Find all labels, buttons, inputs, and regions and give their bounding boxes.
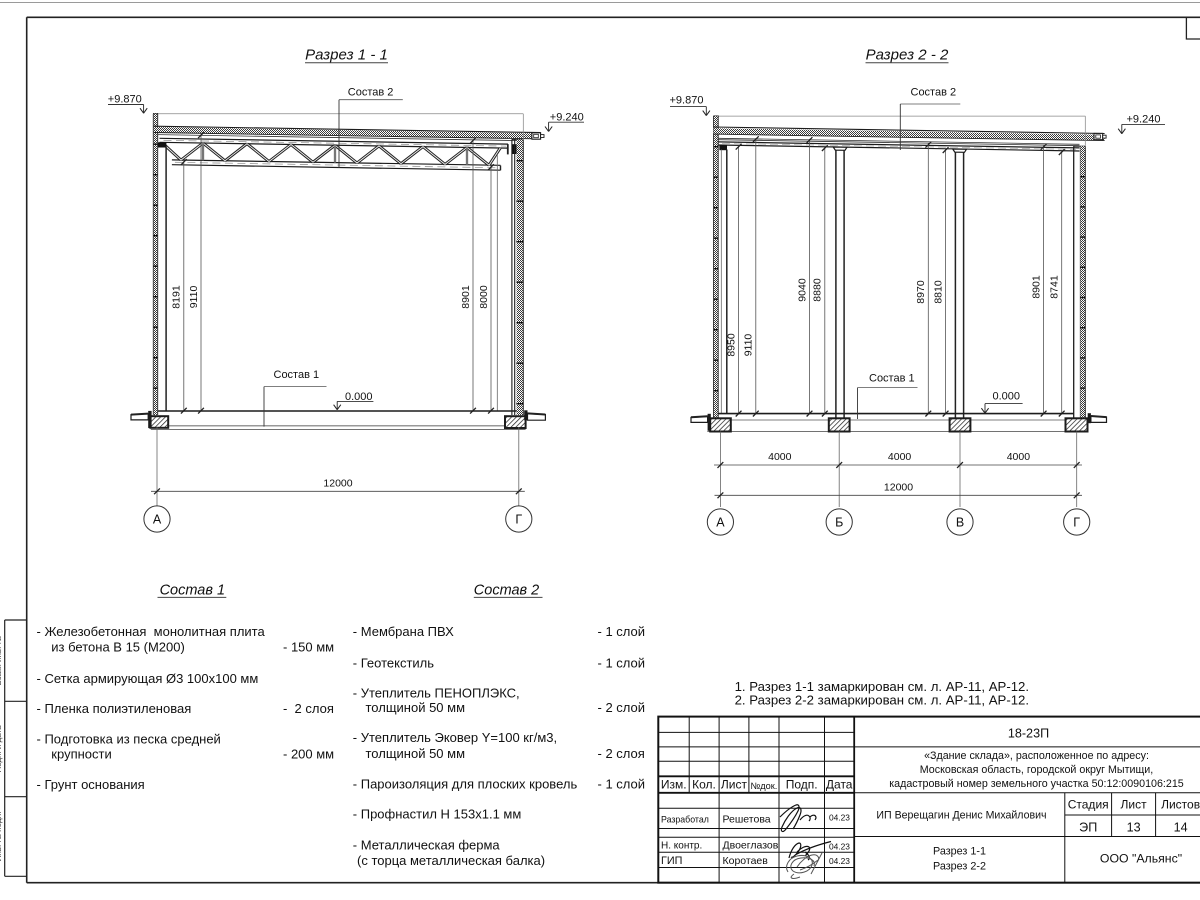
svg-text:14: 14 bbox=[1174, 820, 1188, 834]
svg-text:Изм.: Изм. bbox=[661, 778, 687, 792]
svg-text:- 200 мм: - 200 мм bbox=[283, 747, 334, 762]
svg-text:- Утеплитель ПЕНОПЛЭКС,: - Утеплитель ПЕНОПЛЭКС, bbox=[353, 686, 520, 701]
svg-text:Состав 1: Состав 1 bbox=[869, 373, 915, 385]
svg-text:04.23: 04.23 bbox=[829, 841, 850, 851]
svg-text:Разрез 2-2: Разрез 2-2 bbox=[933, 861, 986, 873]
svg-text:ООО "Альянс": ООО "Альянс" bbox=[1100, 852, 1182, 866]
svg-text:Подп.: Подп. bbox=[786, 778, 818, 792]
svg-text:8000: 8000 bbox=[478, 285, 490, 309]
svg-text:- Геотекстиль: - Геотекстиль bbox=[353, 655, 434, 670]
svg-text:кадастровый номер земельного у: кадастровый номер земельного участка 50:… bbox=[889, 778, 1183, 790]
svg-text:13: 13 bbox=[1127, 820, 1141, 834]
svg-text:04.23: 04.23 bbox=[829, 813, 850, 823]
svg-text:8901: 8901 bbox=[1030, 275, 1042, 299]
svg-text:Состав 2: Состав 2 bbox=[348, 86, 394, 98]
svg-text:Кол.: Кол. bbox=[692, 778, 716, 792]
svg-text:+9.870: +9.870 bbox=[108, 94, 142, 106]
svg-text:крупности: крупности bbox=[51, 747, 111, 762]
svg-text:8950: 8950 bbox=[725, 333, 737, 357]
svg-text:4000: 4000 bbox=[1007, 451, 1031, 463]
svg-text:18-23П: 18-23П bbox=[1008, 727, 1049, 741]
svg-text:Состав 1: Состав 1 bbox=[274, 369, 320, 381]
svg-text:Московская область, городской: Московская область, городской округ Мыти… bbox=[920, 764, 1153, 776]
svg-text:- 1 слой: - 1 слой bbox=[598, 655, 646, 670]
svg-text:04.23: 04.23 bbox=[829, 856, 850, 866]
svg-text:Решетова: Решетова bbox=[723, 814, 771, 826]
svg-text:Состав 2: Состав 2 bbox=[474, 582, 539, 598]
svg-text:ИП Верещагин Денис Михайлович: ИП Верещагин Денис Михайлович bbox=[876, 810, 1046, 822]
svg-text:Г: Г bbox=[1073, 515, 1080, 529]
svg-text:ЭП: ЭП bbox=[1079, 820, 1097, 834]
svg-text:+9.240: +9.240 bbox=[1127, 113, 1161, 125]
svg-text:- Подготовка из песка средней: - Подготовка из песка средней bbox=[37, 731, 221, 746]
svg-text:- 1 слой: - 1 слой bbox=[598, 776, 646, 791]
svg-text:- Металлическая ферма: - Металлическая ферма bbox=[353, 837, 501, 852]
svg-text:А: А bbox=[153, 512, 162, 526]
svg-text:В: В bbox=[956, 515, 964, 529]
svg-text:Двоеглазов: Двоеглазов bbox=[723, 840, 779, 852]
svg-text:толщиной 50 мм: толщиной 50 мм bbox=[366, 700, 466, 715]
svg-text:«Здание склада», расположенное: «Здание склада», расположенное по адресу… bbox=[924, 750, 1149, 762]
svg-text:- 2 слоя: - 2 слоя bbox=[283, 701, 334, 716]
svg-text:Б: Б bbox=[835, 515, 843, 529]
svg-text:8810: 8810 bbox=[932, 280, 944, 304]
svg-text:Н. контр.: Н. контр. bbox=[661, 841, 702, 852]
svg-text:2. Разрез 2-2 замаркирован см.: 2. Разрез 2-2 замаркирован см. л. АР-11,… bbox=[735, 692, 1029, 707]
svg-text:Разрез 1 - 1: Разрез 1 - 1 bbox=[305, 46, 388, 63]
svg-text:12000: 12000 bbox=[323, 478, 352, 490]
svg-text:(с торца металлическая балка): (с торца металлическая балка) bbox=[357, 853, 545, 868]
svg-text:Взам. инв. №: Взам. инв. № bbox=[0, 635, 3, 685]
svg-text:- Пароизоляция для плоских кро: - Пароизоляция для плоских кровель bbox=[353, 776, 578, 791]
svg-text:- 2 слой: - 2 слой bbox=[598, 700, 646, 715]
svg-text:8880: 8880 bbox=[812, 278, 824, 302]
svg-text:Инв. № подл.: Инв. № подл. bbox=[0, 812, 3, 862]
svg-text:- 1 слой: - 1 слой bbox=[598, 624, 646, 639]
svg-text:- Железобетонная монолитная п: - Железобетонная монолитная плита bbox=[37, 624, 266, 639]
svg-text:А: А bbox=[716, 515, 725, 529]
svg-text:- Сетка армирующая Ø3 100х100: - Сетка армирующая Ø3 100х100 мм bbox=[37, 671, 259, 686]
svg-text:8901: 8901 bbox=[460, 285, 472, 309]
svg-text:12000: 12000 bbox=[884, 481, 913, 493]
svg-text:8191: 8191 bbox=[171, 285, 183, 309]
svg-text:8970: 8970 bbox=[915, 280, 927, 304]
svg-text:Разрез 1-1: Разрез 1-1 bbox=[933, 846, 986, 858]
svg-text:Состав 1: Состав 1 bbox=[160, 582, 225, 598]
svg-text:№док.: №док. bbox=[750, 781, 777, 791]
svg-text:8741: 8741 bbox=[1049, 275, 1061, 299]
svg-text:0.000: 0.000 bbox=[993, 391, 1021, 403]
svg-text:+9.870: +9.870 bbox=[670, 95, 704, 107]
svg-text:- 150 мм: - 150 мм bbox=[283, 640, 334, 655]
svg-text:9110: 9110 bbox=[188, 286, 200, 309]
svg-text:Листов: Листов bbox=[1161, 797, 1200, 811]
svg-text:+9.240: +9.240 bbox=[550, 111, 584, 123]
svg-text:Состав 2: Состав 2 bbox=[911, 86, 957, 98]
svg-text:из бетона В 15 (М200): из бетона В 15 (М200) bbox=[51, 640, 185, 655]
svg-text:Г: Г bbox=[515, 512, 522, 526]
svg-text:толщиной 50 мм: толщиной 50 мм bbox=[366, 746, 466, 761]
svg-text:Разрез 2 - 2: Разрез 2 - 2 bbox=[866, 46, 949, 63]
svg-text:- Грунт основания: - Грунт основания bbox=[37, 777, 145, 792]
svg-text:4000: 4000 bbox=[888, 451, 912, 463]
svg-text:9110: 9110 bbox=[743, 334, 755, 357]
svg-text:- Пленка полиэтиленовая: - Пленка полиэтиленовая bbox=[37, 701, 192, 716]
svg-text:- Мембрана ПВХ: - Мембрана ПВХ bbox=[353, 624, 454, 639]
svg-text:Коротаев: Коротаев bbox=[723, 855, 769, 867]
svg-text:4000: 4000 bbox=[768, 451, 792, 463]
svg-text:ГИП: ГИП bbox=[661, 855, 682, 867]
svg-text:Разработал: Разработал bbox=[661, 815, 709, 825]
svg-text:Дата: Дата bbox=[826, 778, 853, 792]
svg-text:9040: 9040 bbox=[796, 278, 808, 302]
svg-text:- 2 слоя: - 2 слоя bbox=[598, 746, 645, 761]
svg-text:Лист: Лист bbox=[721, 778, 748, 792]
svg-text:- Утеплитель Эковер Y=100 кг/м: - Утеплитель Эковер Y=100 кг/м3, bbox=[353, 730, 557, 745]
svg-text:Подп. и дата: Подп. и дата bbox=[0, 725, 3, 773]
svg-text:Лист: Лист bbox=[1121, 797, 1148, 811]
svg-text:- Профнастил Н 153х1.1 мм: - Профнастил Н 153х1.1 мм bbox=[353, 807, 522, 822]
svg-text:Стадия: Стадия bbox=[1068, 797, 1109, 811]
